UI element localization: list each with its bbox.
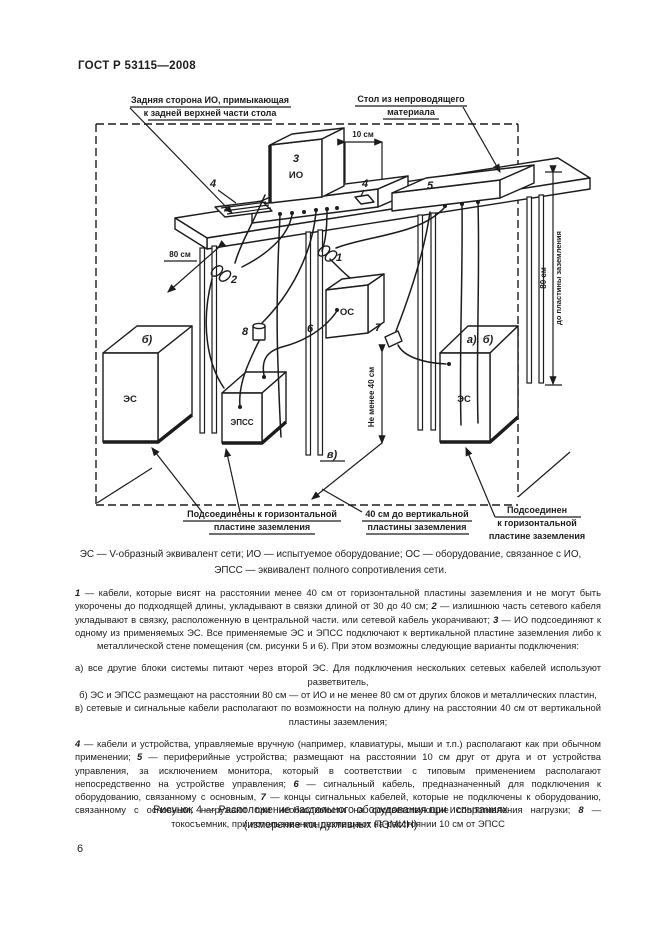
note-item-v: в) сетевые и сигнальные кабели располага… [75, 701, 601, 728]
figure-notes: 1 — кабели, которые висят на расстоянии … [75, 586, 601, 830]
svg-text:4: 4 [361, 178, 368, 190]
figure-caption: Рисунок 4 — Расположение настольного обо… [0, 803, 661, 833]
cable-terminator [385, 331, 402, 347]
dim-40cm-label: Не менее 40 см [367, 367, 376, 427]
callout-back-side: Задняя сторона ИО, примыкающая к задней … [130, 95, 291, 213]
dim-10cm-label: 10 см [352, 130, 374, 139]
ground-left-line1: Подсоединены к горизонтальной [187, 509, 337, 519]
page-number: 6 [77, 843, 83, 855]
ground-right-line3: пластине заземления [489, 531, 585, 541]
ground-right-line2: к горизонтальной [497, 518, 576, 528]
plane-corner-left [97, 468, 152, 503]
document-number: ГОСТ Р 53115—2008 [78, 60, 196, 72]
table-leg [318, 230, 323, 455]
dim-80cm-right-label: 80 см [539, 267, 548, 289]
note-items-1-3: 1 — кабели, которые висят на расстоянии … [75, 586, 601, 652]
os-label: ОС [340, 307, 354, 318]
marker-ab: а), б) [467, 334, 494, 346]
svg-text:4: 4 [209, 178, 216, 190]
dim-80cm-left-label: 80 см [169, 250, 191, 259]
es-left-box: б) ЭС [103, 326, 192, 442]
es-right-label: ЭС [457, 394, 471, 405]
legend-line2: ЭПСС — эквивалент полного сопротивления … [0, 563, 661, 579]
table-leg [418, 215, 423, 430]
note-item-a: а) все другие блоки системы питают через… [75, 661, 601, 688]
label-7: 7 [375, 322, 382, 334]
ground-mid-line1: 40 см до вертикальной [365, 509, 468, 519]
table-leg [527, 197, 532, 383]
callout-back-line1: Задняя сторона ИО, примыкающая [131, 95, 289, 105]
ground-mid-line2: пластины заземления [368, 522, 467, 532]
label-3: 3 [293, 153, 299, 165]
label-2: 2 [230, 274, 237, 286]
cable [396, 212, 430, 331]
label-8: 8 [242, 326, 249, 338]
ground-label-mid: 40 см до вертикальной пластины заземлени… [322, 489, 472, 534]
epss-box: ЭПСС [222, 372, 286, 443]
document-page: ГОСТ Р 53115—2008 [0, 0, 661, 936]
dim-to-plate-label: до пластины заземления [554, 231, 563, 325]
io-label: ИО [289, 170, 303, 181]
label-5: 5 [427, 180, 434, 192]
ground-label-left: Подсоединены к горизонтальной пластине з… [152, 448, 341, 534]
marker-v: в) [327, 449, 338, 461]
ground-label-right: Подсоединен к горизонтальной пластине за… [466, 448, 585, 541]
ground-right-line1: Подсоединен [507, 505, 567, 515]
current-probe [253, 323, 265, 340]
marker-b: б) [142, 334, 153, 346]
figure-legend: ЭС — V-образный эквивалент сети; ИО — ис… [0, 547, 661, 579]
note-item-b: б) ЭС и ЭПСС размещают на расстоянии 80 … [75, 688, 601, 701]
callout-table-material: Стол из непроводящего материала [355, 94, 500, 172]
label-6: 6 [307, 323, 314, 335]
plane-corner-right [518, 452, 570, 497]
table-leg [212, 246, 217, 433]
caption-line1: Рисунок 4 — Расположение настольного обо… [0, 803, 661, 818]
table-leg [431, 213, 436, 430]
ground-left-line2: пластине заземления [214, 522, 310, 532]
callout-table-leader [463, 107, 500, 172]
caption-line2: (измерение кондуктивных ПЭМИН) [0, 818, 661, 833]
io-box: 3 ИО [270, 128, 344, 203]
table-leg [306, 232, 311, 455]
es-left-label: ЭС [123, 394, 137, 405]
label-4-keyboard: 4 [209, 178, 236, 203]
callout-table-line2: материала [387, 107, 436, 117]
es-right-box: а), б) ЭС [440, 326, 518, 442]
legend-line1: ЭС — V-образный эквивалент сети; ИО — ис… [0, 547, 661, 563]
epss-label: ЭПСС [231, 418, 254, 427]
figure-4-diagram: 3 ИО 5 б) ЭС ЭПС [0, 85, 661, 555]
table-leg [200, 248, 205, 433]
callout-table-line1: Стол из непроводящего [357, 94, 465, 104]
label-1: 1 [336, 252, 342, 264]
dimension-10cm: 10 см [345, 130, 382, 183]
callout-back-line2: к задней верхней части стола [144, 108, 278, 118]
